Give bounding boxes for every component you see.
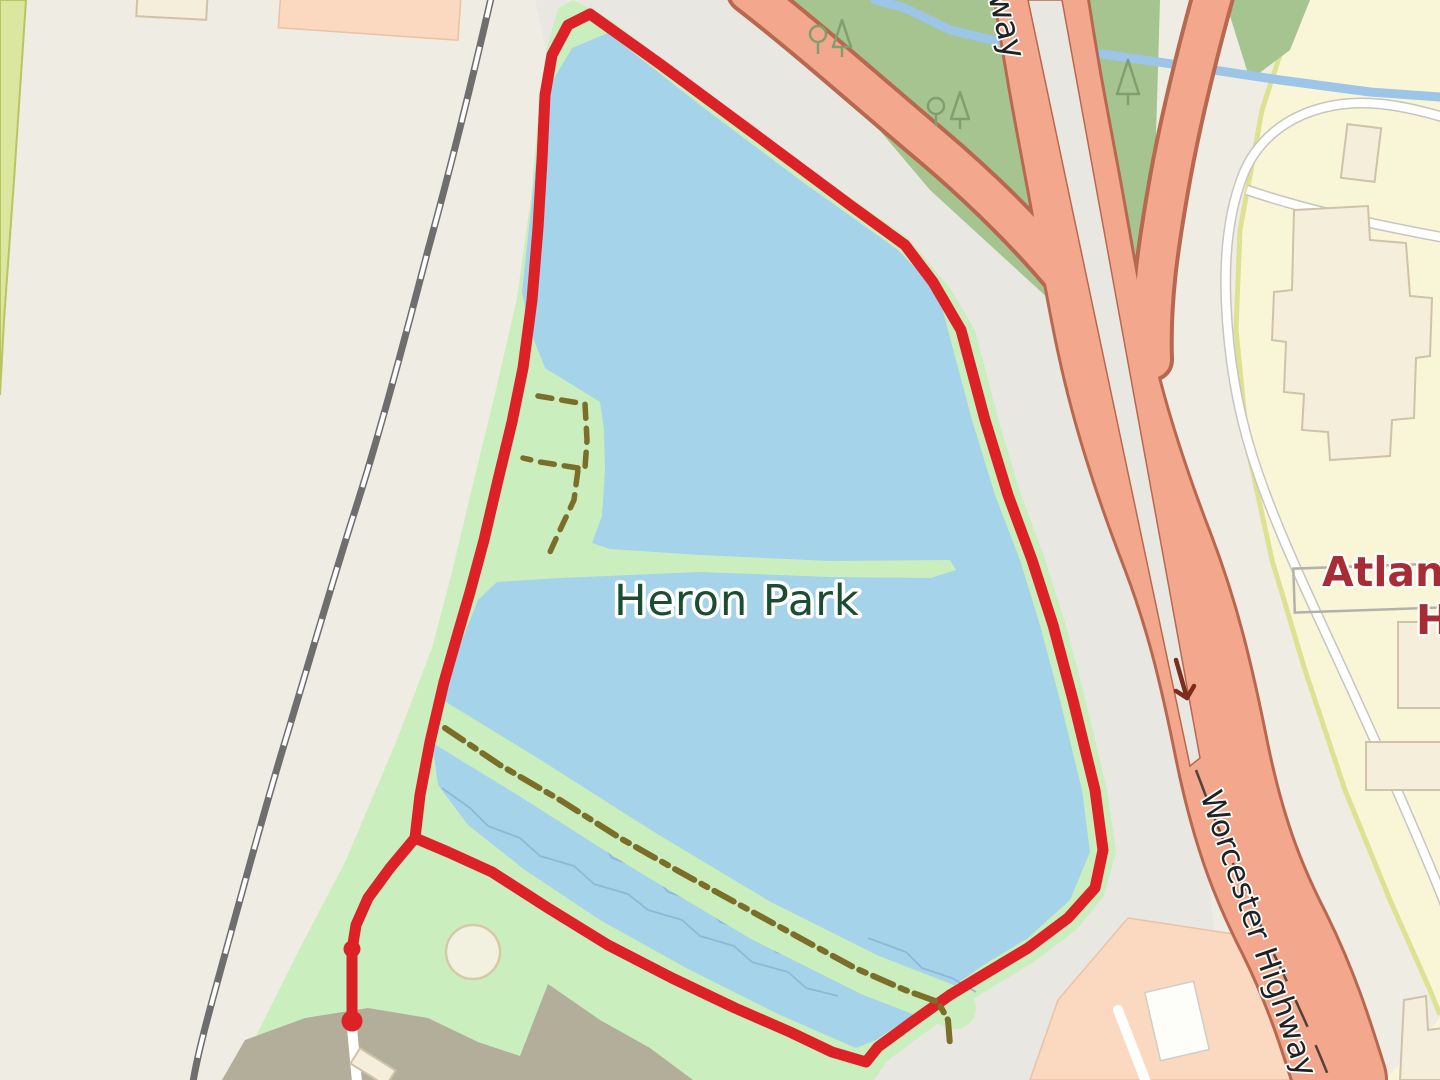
route-start-dot [342, 1011, 363, 1032]
hospital-name-label-line1: Atlantic [1322, 548, 1440, 596]
park-name-label: Heron Park [614, 576, 860, 626]
map-canvas[interactable]: Heron Park way Worcester Highway Atlanti… [0, 0, 1440, 1080]
route-waypoint-dot [344, 941, 361, 958]
building [1366, 742, 1440, 790]
clearing-circle [446, 925, 500, 979]
building [1341, 124, 1381, 182]
building [136, 0, 207, 20]
hospital-name-label-line2: H [1416, 596, 1440, 644]
map-viewport: Heron Park way Worcester Highway Atlanti… [0, 0, 1440, 1080]
